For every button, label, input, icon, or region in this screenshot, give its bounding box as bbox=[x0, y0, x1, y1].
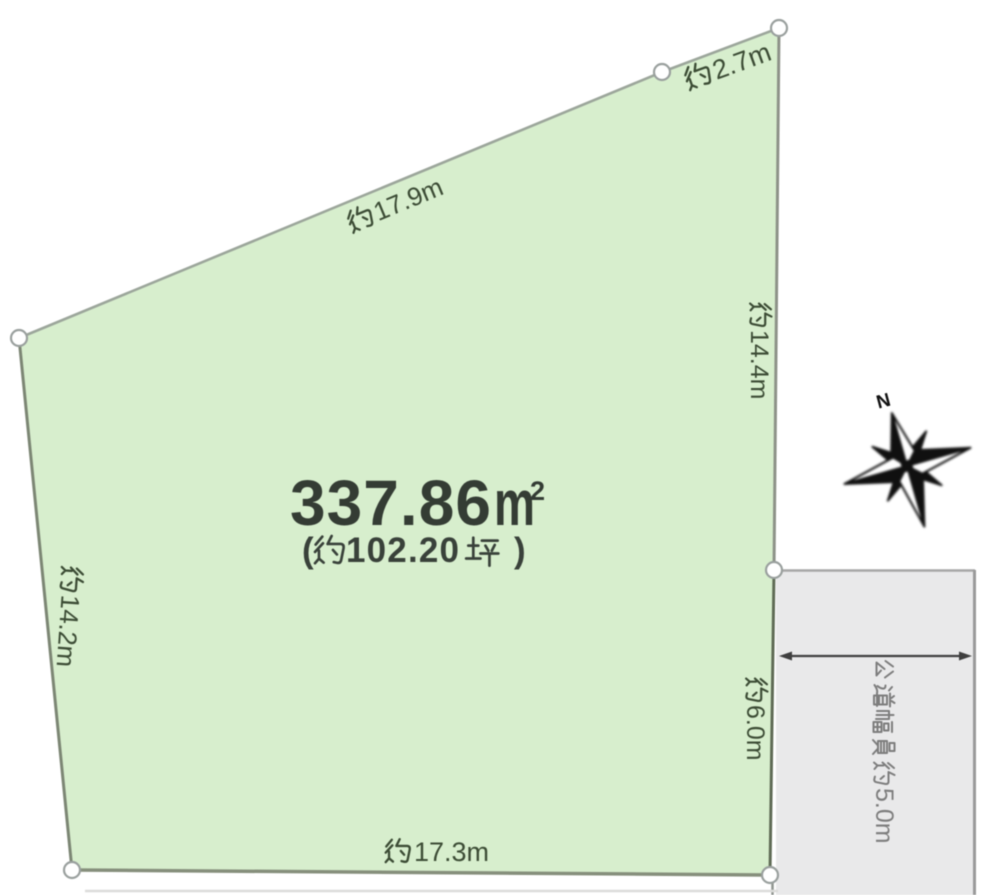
svg-text:14.4m: 14.4m bbox=[745, 330, 773, 399]
svg-text:102.20: 102.20 bbox=[346, 531, 459, 570]
svg-text:N: N bbox=[874, 390, 893, 414]
svg-text:5.0m: 5.0m bbox=[870, 788, 898, 844]
svg-text:(: ( bbox=[302, 531, 314, 570]
svg-text:): ) bbox=[514, 531, 526, 570]
svg-text:14.2m: 14.2m bbox=[51, 594, 86, 668]
svg-text:337.86: 337.86 bbox=[290, 467, 491, 539]
svg-text:17.3m: 17.3m bbox=[414, 837, 489, 867]
svg-text:6.0m: 6.0m bbox=[741, 705, 769, 761]
svg-text:2: 2 bbox=[530, 476, 545, 506]
svg-text:m: m bbox=[494, 468, 535, 539]
